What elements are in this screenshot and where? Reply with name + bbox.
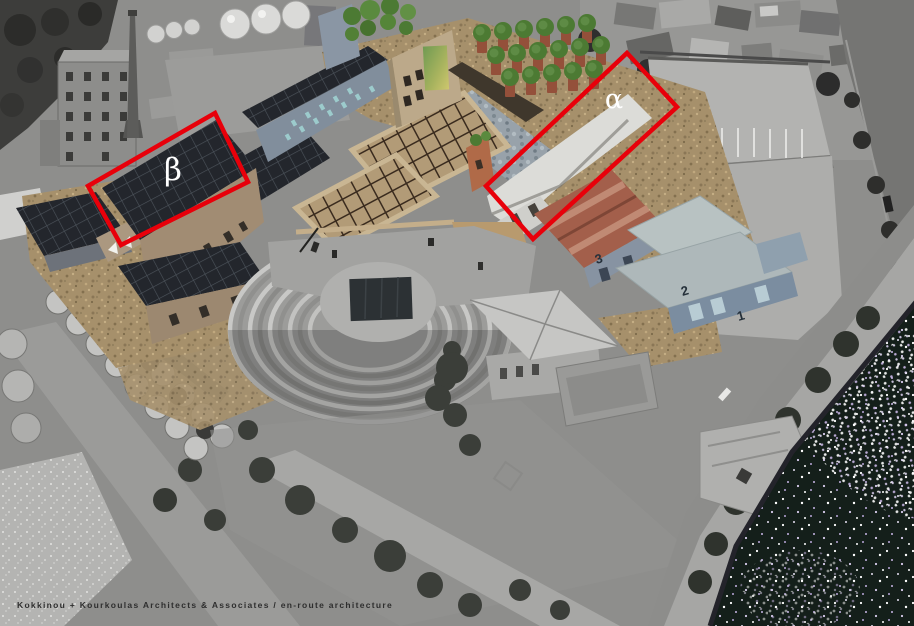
aerial-photo-svg: 3 2 1 <box>0 0 914 626</box>
annotation-alpha-label: α <box>605 84 623 115</box>
annotation-beta-label: β <box>164 152 182 188</box>
stage-platform <box>349 277 412 321</box>
aerial-photomontage: 3 2 1 <box>0 0 914 626</box>
wall-mural <box>423 45 449 90</box>
credit-caption: Kokkinou + Kourkoulas Architects & Assoc… <box>17 600 393 610</box>
